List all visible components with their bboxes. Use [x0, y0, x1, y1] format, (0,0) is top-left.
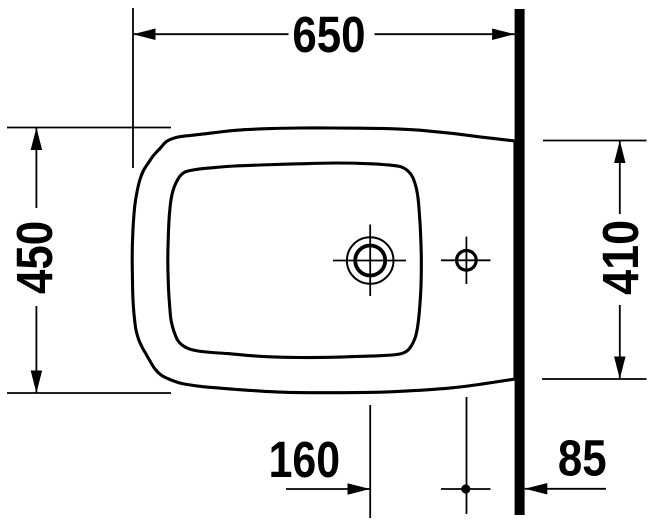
svg-text:85: 85	[558, 430, 607, 487]
svg-text:650: 650	[292, 7, 365, 64]
svg-text:160: 160	[269, 430, 340, 487]
svg-text:410: 410	[593, 220, 649, 295]
svg-text:450: 450	[7, 221, 64, 294]
